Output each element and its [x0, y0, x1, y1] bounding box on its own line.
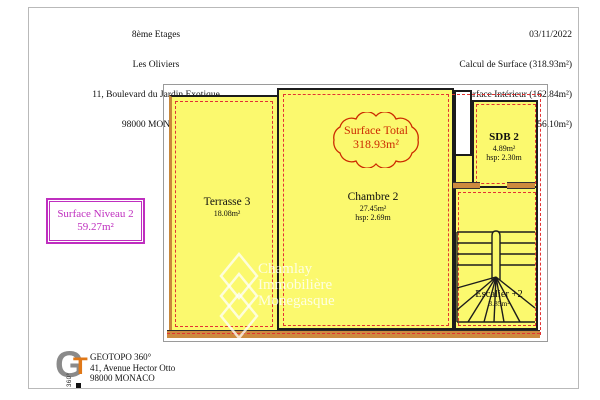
door-opening-sdb — [507, 182, 535, 189]
header-calcul-surface: Calcul de Surface (318.93m²) — [366, 60, 572, 70]
surface-niveau-inner-border: Surface Niveau 2 59.27m² — [49, 201, 142, 241]
surface-total-title: Surface Total — [330, 123, 422, 137]
surface-niveau-title: Surface Niveau 2 — [57, 208, 133, 221]
logo-letter-t: T — [73, 355, 88, 379]
logo-360-vertical: 360° — [67, 373, 73, 387]
chambre-name: Chambre 2 — [295, 191, 451, 204]
sdb-label: SDB 2 4.89m² hsp: 2.30m — [470, 131, 538, 162]
measure-dash-top-right — [452, 94, 540, 95]
escalier-label: Escalier +2 3.85m² — [459, 289, 539, 308]
terrasse-label: Terrasse 3 18.08m² — [170, 196, 284, 218]
surface-niveau-value: 59.27m² — [77, 221, 114, 234]
chambre-hsp: hsp: 2.69m — [295, 213, 451, 222]
sdb-area: 4.89m² — [470, 144, 538, 153]
footer-company-block: GEOTOPO 360° 41, Avenue Hector Otto 9800… — [90, 352, 175, 384]
sdb-hsp: hsp: 2.30m — [470, 153, 538, 162]
terrasse-name: Terrasse 3 — [170, 196, 284, 209]
surface-total-value: 318.93m² — [330, 137, 422, 151]
header-floor: 8ème Etages — [50, 30, 262, 40]
stairs-drawing — [454, 228, 538, 332]
footer-company: GEOTOPO 360° — [90, 352, 175, 363]
watermark-text: Chamlay Immobilière Monegasque — [258, 261, 335, 309]
sdb-name: SDB 2 — [470, 131, 538, 144]
header-building: Les Oliviers — [50, 60, 262, 70]
watermark-line-3: Monegasque — [258, 293, 335, 309]
watermark-diamond-logo-icon — [218, 252, 260, 338]
logo-square — [76, 383, 81, 388]
header-date: 03/11/2022 — [366, 30, 572, 40]
chambre-label: Chambre 2 27.45m² hsp: 2.69m — [295, 191, 451, 222]
footer-address: 41, Avenue Hector Otto — [90, 363, 175, 374]
surface-total-label: Surface Total 318.93m² — [330, 123, 422, 151]
terrasse-area: 18.08m² — [170, 209, 284, 218]
escalier-area: 3.85m² — [459, 300, 539, 308]
chambre-area: 27.45m² — [295, 204, 451, 213]
surface-niveau-box: Surface Niveau 2 59.27m² — [46, 198, 145, 244]
door-opening-corridor — [453, 182, 480, 189]
watermark-line-2: Immobilière — [258, 277, 335, 293]
footer-city: 98000 MONACO — [90, 373, 175, 384]
measure-dash-right-edge — [540, 94, 541, 335]
floor-plan-sheet: 8ème Etages Les Oliviers 11, Boulevard d… — [0, 0, 600, 400]
watermark-line-1: Chamlay — [258, 261, 335, 277]
